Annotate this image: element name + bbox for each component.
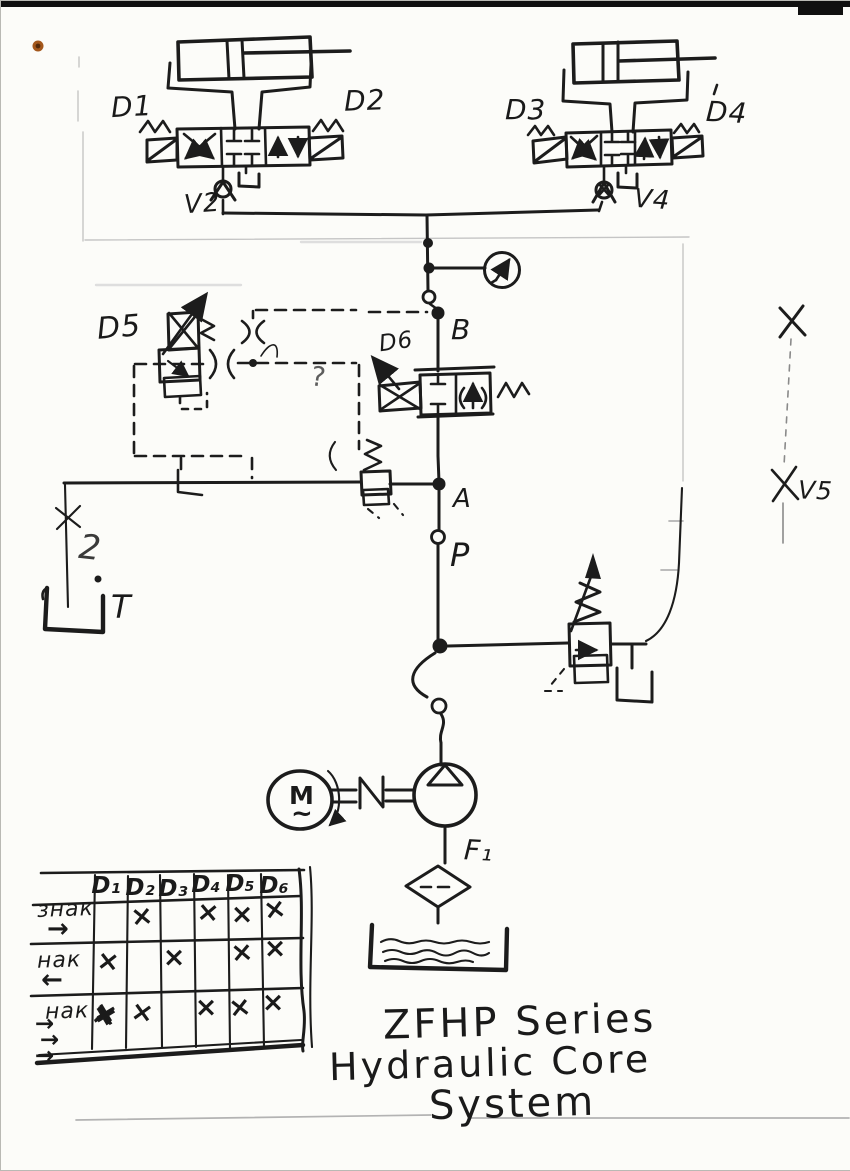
sequence-valve-icon (330, 440, 403, 518)
ink-blot (33, 41, 44, 52)
label-d4: D4 (705, 98, 748, 128)
label-port-a: A (453, 486, 472, 512)
motor-wave-glyph: ~ (291, 801, 313, 827)
hand-drawn-hydraulic-schematic: D1 D2 D3 D4 V2 V4 D5 D6 B A P 2 T V5 F₁ … (0, 0, 850, 1171)
mark-r1-d4: × (190, 896, 227, 933)
label-2: 2 (77, 530, 103, 566)
valve-d6-icon (374, 359, 529, 482)
label-port-b: B (451, 316, 471, 344)
v5-test-point-icon (772, 306, 805, 543)
table-col-d3: D₃ (156, 876, 190, 902)
label-v5: V5 (798, 477, 834, 503)
orifice-horizontal-icon (210, 350, 234, 378)
d4-tick (714, 85, 717, 94)
label-d3: D3 (505, 96, 546, 124)
label-d1: D1 (110, 92, 153, 122)
valve-d3-d4-icon (528, 124, 703, 167)
mark-r2-d1: × (89, 944, 127, 982)
mark-r3-d6: × (256, 987, 290, 1021)
cylinder-right-icon (563, 41, 715, 132)
label-d5: D5 (96, 311, 143, 345)
label-f1: F₁ (463, 836, 494, 865)
mark-r2-d6: × (258, 933, 292, 967)
valve-d1-d2-icon (140, 120, 343, 167)
row1-arrow-right: → (47, 914, 69, 944)
mark-r2-d5: × (224, 936, 261, 973)
label-v2: V2 (183, 190, 221, 218)
mark-r1-d6: × (256, 892, 294, 930)
label-v4: V4 (633, 186, 671, 214)
title-line-3: System (428, 1079, 596, 1129)
mark-r3-d2: × (123, 995, 162, 1034)
mark-r2-d3: × (157, 942, 191, 976)
table-col-d2: D₂ (123, 875, 157, 901)
row2-arrow-left: ← (41, 965, 63, 995)
cylinder-left-icon (168, 37, 350, 129)
hose-icon (413, 653, 446, 743)
mark-r1-d5: × (225, 899, 259, 933)
scan-edge-strip (1, 1, 850, 15)
table-col-d1: D₁ (89, 873, 123, 899)
label-d6: D6 (378, 329, 415, 357)
orifice-vertical-icon (242, 321, 264, 343)
coupling-icon (332, 777, 413, 808)
tank-relief-icon (617, 668, 652, 702)
mark-r3-d4: × (189, 992, 223, 1026)
table-col-d5: D₅ (223, 871, 257, 897)
row3-arrow-3: → (35, 1043, 54, 1069)
label-port-t: T (111, 591, 132, 623)
table-col-d4: D₄ (189, 872, 223, 898)
valve-d5-icon (159, 296, 214, 397)
mark-r3-d5: × (221, 990, 259, 1028)
pressure-gauge-icon (485, 253, 520, 288)
mark-r1-d2: × (123, 899, 160, 936)
check-valve-v4-icon (593, 166, 615, 211)
tank-port-left-icon (239, 167, 259, 187)
label-port-p: P (450, 539, 470, 571)
label-d2: D2 (344, 86, 386, 115)
filter-f1-icon (406, 866, 470, 923)
relief-valve-icon (448, 488, 682, 691)
reservoir-icon (370, 925, 507, 970)
